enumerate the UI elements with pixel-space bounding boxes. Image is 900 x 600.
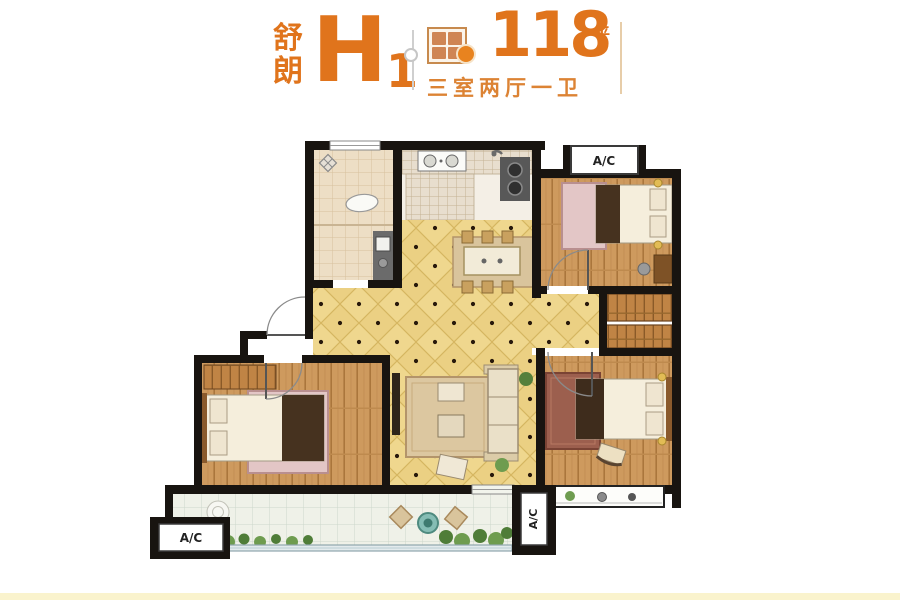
bathroom-window bbox=[330, 141, 380, 150]
desk bbox=[654, 255, 672, 283]
ac-unit-right: A/C bbox=[512, 485, 556, 555]
entry-door bbox=[267, 297, 305, 335]
plant-icon bbox=[495, 458, 509, 472]
series-name-bottom: 朗 bbox=[264, 55, 312, 88]
kitchen-sink-icon bbox=[500, 157, 530, 201]
ac-left-label: A/C bbox=[180, 531, 203, 545]
dining-set bbox=[453, 231, 533, 293]
floorplan: A/C A/C A/C bbox=[150, 133, 690, 593]
washbasin-icon bbox=[376, 237, 390, 251]
plant-icon bbox=[519, 372, 533, 386]
desk-chair bbox=[638, 263, 650, 275]
circle-ornament-icon bbox=[404, 48, 418, 62]
ac-top-label: A/C bbox=[593, 154, 616, 168]
dining-table bbox=[464, 247, 520, 275]
bed bbox=[202, 393, 324, 463]
kitchen bbox=[402, 150, 532, 220]
seal-dot-icon bbox=[456, 44, 476, 64]
master-bay-window bbox=[550, 486, 664, 507]
tv-console bbox=[392, 373, 400, 435]
bottom-strip bbox=[0, 593, 900, 600]
sofa bbox=[484, 365, 518, 461]
floorplan-svg: A/C A/C A/C bbox=[150, 133, 690, 593]
layout-description: 三室两厅一卫 bbox=[427, 72, 583, 102]
bed bbox=[596, 179, 672, 249]
series-name-top: 舒 bbox=[264, 22, 312, 55]
balcony-sliding-door bbox=[472, 485, 514, 494]
coffee-table bbox=[438, 415, 464, 437]
header-divider-right bbox=[620, 22, 622, 94]
plant-icon bbox=[565, 491, 575, 501]
ac-unit-top: A/C bbox=[571, 146, 638, 174]
bathroom bbox=[314, 149, 393, 280]
series-name: 舒 朗 bbox=[264, 22, 312, 88]
area-unit: 平 bbox=[594, 20, 610, 44]
ac-unit-bottom-left: A/C bbox=[150, 517, 230, 559]
wardrobe-cabinets bbox=[602, 294, 672, 348]
stove-icon bbox=[418, 151, 466, 171]
unit-letter: H bbox=[312, 6, 385, 96]
page: 舒 朗 H 1 118 平 三室两厅一卫 bbox=[0, 0, 900, 600]
bed bbox=[576, 373, 672, 445]
ac-right-label: A/C bbox=[527, 509, 540, 530]
area-value: 118 bbox=[489, 4, 609, 66]
armchair bbox=[438, 383, 464, 401]
header: 舒 朗 H 1 118 平 三室两厅一卫 bbox=[0, 0, 900, 120]
